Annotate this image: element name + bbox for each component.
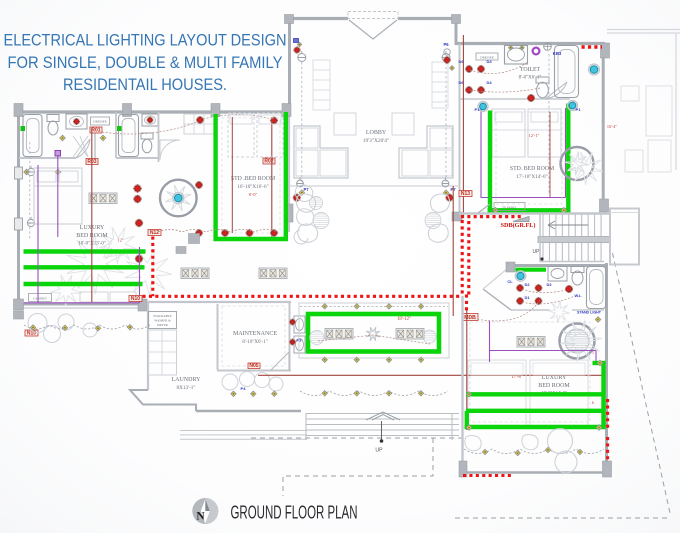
svg-text:LAUNDRY: LAUNDRY (171, 377, 201, 383)
svg-text:16'-10"X16'-6": 16'-10"X16'-6" (237, 184, 268, 190)
svg-text:P4: P4 (241, 386, 247, 391)
svg-text:8'-0"X6'-1": 8'-0"X6'-1" (519, 76, 542, 81)
svg-text:GROUND FLOOR PLAN: GROUND FLOOR PLAN (231, 501, 358, 522)
svg-text:19'3"X20'4": 19'3"X20'4" (363, 138, 389, 144)
svg-text:MAINTENANCE: MAINTENANCE (233, 331, 277, 337)
svg-text:TV PANEL: TV PANEL (502, 206, 517, 210)
svg-text:18'-12": 18'-12" (397, 317, 411, 322)
svg-text:R01: R01 (91, 128, 100, 134)
svg-text:1: 1 (592, 350, 594, 355)
svg-text:RESIDENTAIL HOUSES.: RESIDENTAIL HOUSES. (63, 76, 227, 94)
svg-text:D1: D1 (524, 295, 530, 300)
svg-text:8'-0": 8'-0" (249, 192, 258, 197)
svg-text:FOR SINGLE, DOUBLE & MULTI FAM: FOR SINGLE, DOUBLE & MULTI FAMILY (8, 54, 283, 72)
svg-text:P6: P6 (443, 42, 449, 47)
svg-text:N13: N13 (461, 191, 470, 197)
svg-text:ELECTRICAL LIGHTING LAYOUT DES: ELECTRICAL LIGHTING LAYOUT DESIGN (4, 31, 287, 49)
svg-text:P1: P1 (576, 107, 582, 112)
svg-text:N10: N10 (27, 331, 36, 337)
svg-text:8'-10"X6'-1": 8'-10"X6'-1" (242, 340, 267, 345)
svg-text:16'-4": 16'-4" (607, 124, 617, 129)
svg-text:N12: N12 (150, 230, 159, 236)
svg-text:LUXURY: LUXURY (542, 375, 567, 381)
svg-text:UP: UP (533, 249, 541, 255)
svg-text:N05: N05 (249, 363, 258, 369)
svg-text:CABINET: CABINET (33, 297, 47, 301)
svg-text:STD. BED ROOM: STD. BED ROOM (510, 166, 554, 172)
svg-text:D2: D2 (524, 282, 530, 287)
svg-text:D2: D2 (546, 282, 552, 287)
svg-text:WASHER &: WASHER & (154, 319, 171, 323)
svg-text:12'-1": 12'-1" (529, 133, 540, 138)
svg-text:W.L: W.L (574, 293, 582, 298)
svg-text:12': 12' (117, 238, 123, 243)
svg-text:17'-10"X14'-0": 17'-10"X14'-0" (516, 174, 547, 180)
svg-text:STACKABLE: STACKABLE (153, 314, 172, 318)
svg-text:R02: R02 (264, 159, 273, 165)
svg-text:LOBBY: LOBBY (366, 130, 387, 136)
svg-text:UP: UP (375, 448, 383, 454)
svg-text:CL: CL (507, 279, 513, 284)
svg-text:17'-8": 17'-8" (511, 375, 523, 380)
svg-text:BED ROOM: BED ROOM (538, 383, 570, 389)
svg-text:SDB(GR.FL): SDB(GR.FL) (501, 222, 536, 229)
svg-text:b: b (592, 400, 594, 405)
svg-text:D4: D4 (486, 59, 492, 64)
svg-text:DRESSER: DRESSER (93, 120, 106, 124)
svg-text:STD .BED ROOM: STD .BED ROOM (231, 176, 275, 182)
svg-text:D4: D4 (486, 80, 492, 85)
svg-text:N10: N10 (131, 296, 140, 302)
svg-text:TOILET: TOILET (520, 67, 541, 73)
svg-text:8X13'-1": 8X13'-1" (177, 385, 196, 391)
svg-text:STAND LIGHT: STAND LIGHT (577, 311, 602, 315)
svg-text:KB3: KB3 (553, 51, 562, 56)
svg-text:DRYER: DRYER (157, 323, 169, 327)
svg-text:P1: P1 (475, 107, 481, 112)
svg-text:N: N (196, 511, 205, 523)
svg-text:P7: P7 (303, 187, 309, 192)
svg-text:MDB: MDB (464, 315, 476, 321)
